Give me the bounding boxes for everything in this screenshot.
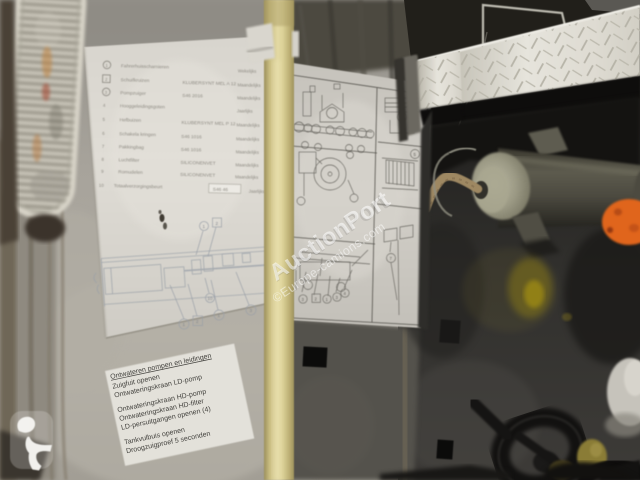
svg-text:S46 46: S46 46	[213, 187, 229, 193]
svg-text:SILICONENVET: SILICONENVET	[180, 160, 215, 167]
svg-text:Schakela kringen: Schakela kringen	[119, 131, 156, 138]
svg-text:Maandelijks: Maandelijks	[237, 95, 261, 101]
svg-text:Hooggeleidingsgoten: Hooggeleidingsgoten	[120, 103, 166, 110]
svg-text:10: 10	[208, 296, 214, 301]
svg-text:Pompzuiger: Pompzuiger	[120, 90, 146, 97]
svg-text:Maandelijks: Maandelijks	[237, 82, 261, 88]
svg-text:S46 1016: S46 1016	[181, 134, 202, 141]
svg-text:Wekelijks: Wekelijks	[238, 68, 257, 74]
svg-text:Schuifkruizen: Schuifkruizen	[120, 77, 149, 84]
svg-text:Maandelijks: Maandelijks	[236, 136, 260, 142]
svg-text:SILICONENVET: SILICONENVET	[180, 172, 215, 179]
svg-text:10: 10	[99, 183, 105, 188]
svg-text:Maandelijks: Maandelijks	[235, 174, 259, 180]
svg-text:S46 1016: S46 1016	[181, 147, 202, 154]
svg-text:Maandelijks: Maandelijks	[236, 122, 260, 128]
svg-text:Maandelijks: Maandelijks	[236, 149, 260, 155]
svg-text:Luchtfilter: Luchtfilter	[118, 157, 139, 164]
svg-text:Jaarlijks: Jaarlijks	[237, 108, 254, 113]
svg-text:S46 2016: S46 2016	[182, 93, 203, 100]
svg-text:Hefbuizen: Hefbuizen	[119, 117, 141, 124]
svg-text:Romudelen: Romudelen	[118, 169, 143, 176]
svg-text:Maandelijks: Maandelijks	[235, 162, 259, 168]
svg-text:Pakkingbag: Pakkingbag	[119, 144, 145, 151]
svg-text:Jaarlijks: Jaarlijks	[249, 189, 266, 194]
